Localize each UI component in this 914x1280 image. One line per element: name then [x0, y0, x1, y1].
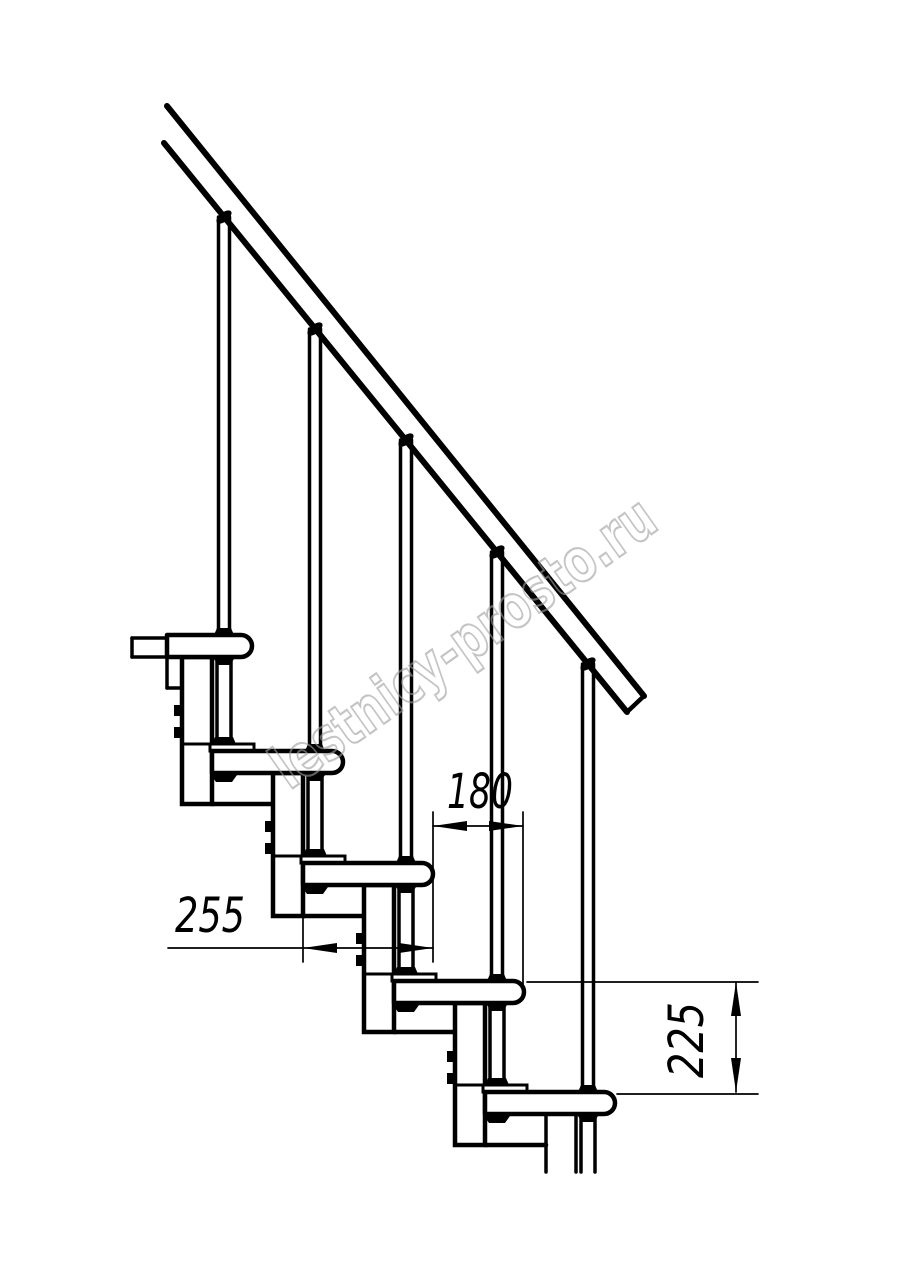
column-bolt	[356, 955, 365, 966]
column-bolt	[265, 821, 274, 832]
rod-foot-mount	[303, 849, 327, 856]
column-bolt	[174, 727, 183, 738]
tread	[394, 981, 524, 1003]
support-column	[455, 1003, 485, 1145]
staircase-technical-drawing: 180255225lestnicy-prosto.ru	[0, 0, 914, 1280]
support-column	[364, 885, 394, 1032]
rod-foot-mount	[212, 737, 236, 744]
column-bolt	[265, 843, 274, 854]
baluster-foot	[214, 628, 234, 635]
tread	[167, 635, 252, 657]
baluster-foot	[578, 1085, 598, 1092]
support-column	[182, 657, 212, 804]
rod-foot-mount	[485, 1078, 509, 1085]
staircase-drawing-page: 180255225lestnicy-prosto.ru	[0, 0, 914, 1280]
dimension-label: 180	[447, 764, 513, 820]
rod-foot-mount	[394, 967, 418, 974]
column-bolt	[447, 1073, 456, 1084]
tread	[303, 863, 433, 885]
column-bolt	[356, 933, 365, 944]
dimension-label: 255	[175, 888, 245, 944]
column-bolt	[174, 705, 183, 716]
tread	[485, 1092, 615, 1114]
baluster-foot	[487, 974, 507, 981]
baluster-foot	[396, 856, 416, 863]
dimension-label: 225	[659, 1002, 715, 1078]
column-bolt	[447, 1051, 456, 1062]
